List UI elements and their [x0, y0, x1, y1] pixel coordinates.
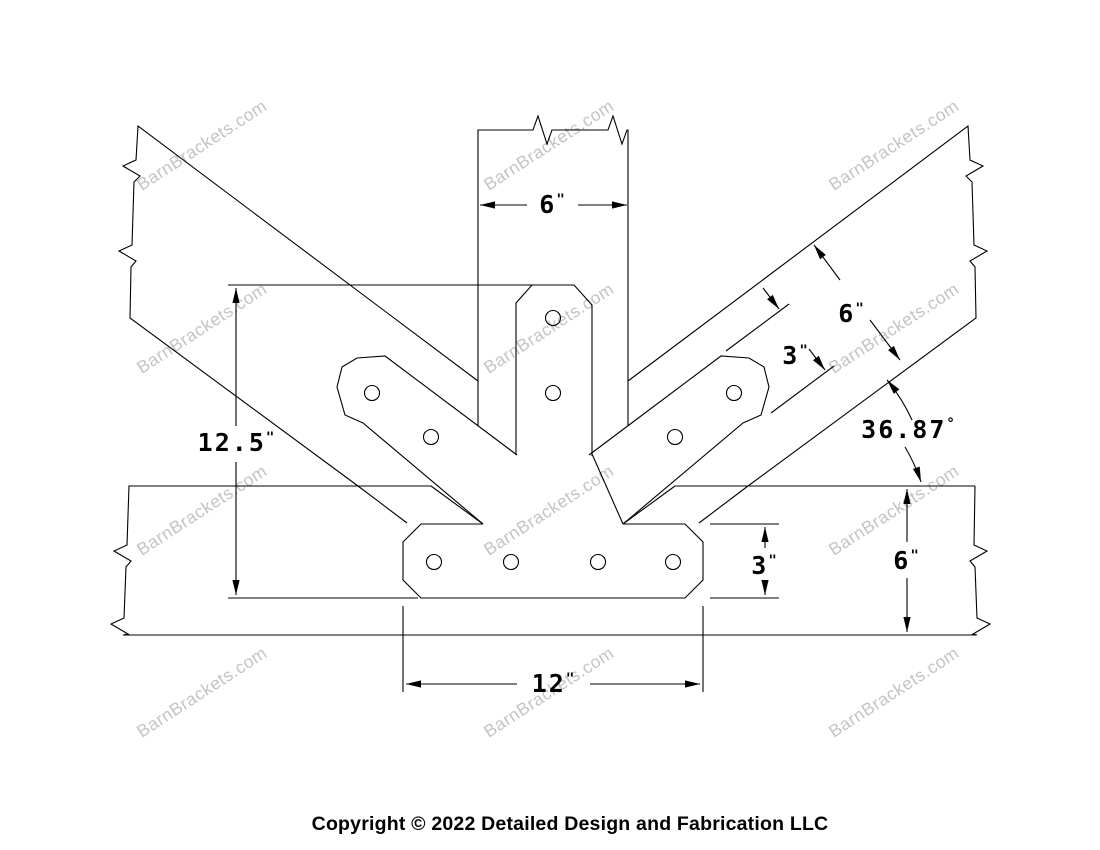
dim-label: 12.5"	[198, 428, 275, 457]
right-notch-line	[623, 486, 675, 524]
bottom-chord-right-break	[970, 486, 990, 635]
bolt-hole	[365, 386, 380, 401]
bolt-hole	[504, 555, 519, 570]
dim-bracket-height: 12.5"	[198, 285, 533, 598]
dim-plate-height: 3"	[710, 524, 779, 598]
watermark-text: BarnBrackets.com	[480, 278, 618, 377]
bolt-hole	[546, 386, 561, 401]
left-strut-outline	[119, 126, 478, 523]
dim-label: 3"	[751, 551, 777, 580]
left-notch-line	[431, 486, 483, 524]
bracket-left-arm	[337, 356, 517, 524]
truss-bracket-drawing: BarnBrackets.com BarnBrackets.com BarnBr…	[0, 0, 1100, 850]
dim-label: 12"	[532, 669, 575, 698]
bracket-base-plate	[403, 524, 703, 598]
watermark-text: BarnBrackets.com	[133, 278, 271, 377]
watermark-text: BarnBrackets.com	[480, 95, 618, 194]
copyright-text: Copyright © 2022 Detailed Design and Fab…	[312, 813, 829, 835]
bracket-right-arm	[589, 356, 769, 524]
dim-label: 3"	[782, 341, 808, 370]
dimension-layer: 6" 12.5" 6" 3" 36.87°	[198, 190, 955, 698]
watermark-text: BarnBrackets.com	[480, 460, 618, 559]
bolt-hole	[727, 386, 742, 401]
watermark-text: BarnBrackets.com	[133, 642, 271, 741]
king-post-outline	[478, 116, 628, 426]
drawing-page: BarnBrackets.com BarnBrackets.com BarnBr…	[0, 0, 1100, 850]
dim-plate-width: 12"	[403, 606, 703, 698]
bolt-hole	[427, 555, 442, 570]
bolt-hole	[591, 555, 606, 570]
watermark-text: BarnBrackets.com	[825, 460, 963, 559]
watermark-text: BarnBrackets.com	[133, 460, 271, 559]
bolt-hole	[666, 555, 681, 570]
dim-strut-arm-width: 3"	[726, 288, 834, 413]
watermark-text: BarnBrackets.com	[133, 95, 271, 194]
bolt-hole	[668, 430, 683, 445]
watermark-text: BarnBrackets.com	[825, 642, 963, 741]
dim-post-width: 6"	[480, 190, 627, 219]
right-strut-outline	[628, 126, 987, 523]
dim-label: 6"	[838, 299, 864, 328]
bolt-hole	[424, 430, 439, 445]
dim-label: 6"	[539, 190, 565, 219]
dim-label: 6"	[893, 546, 919, 575]
dim-label: 36.87°	[861, 415, 955, 444]
